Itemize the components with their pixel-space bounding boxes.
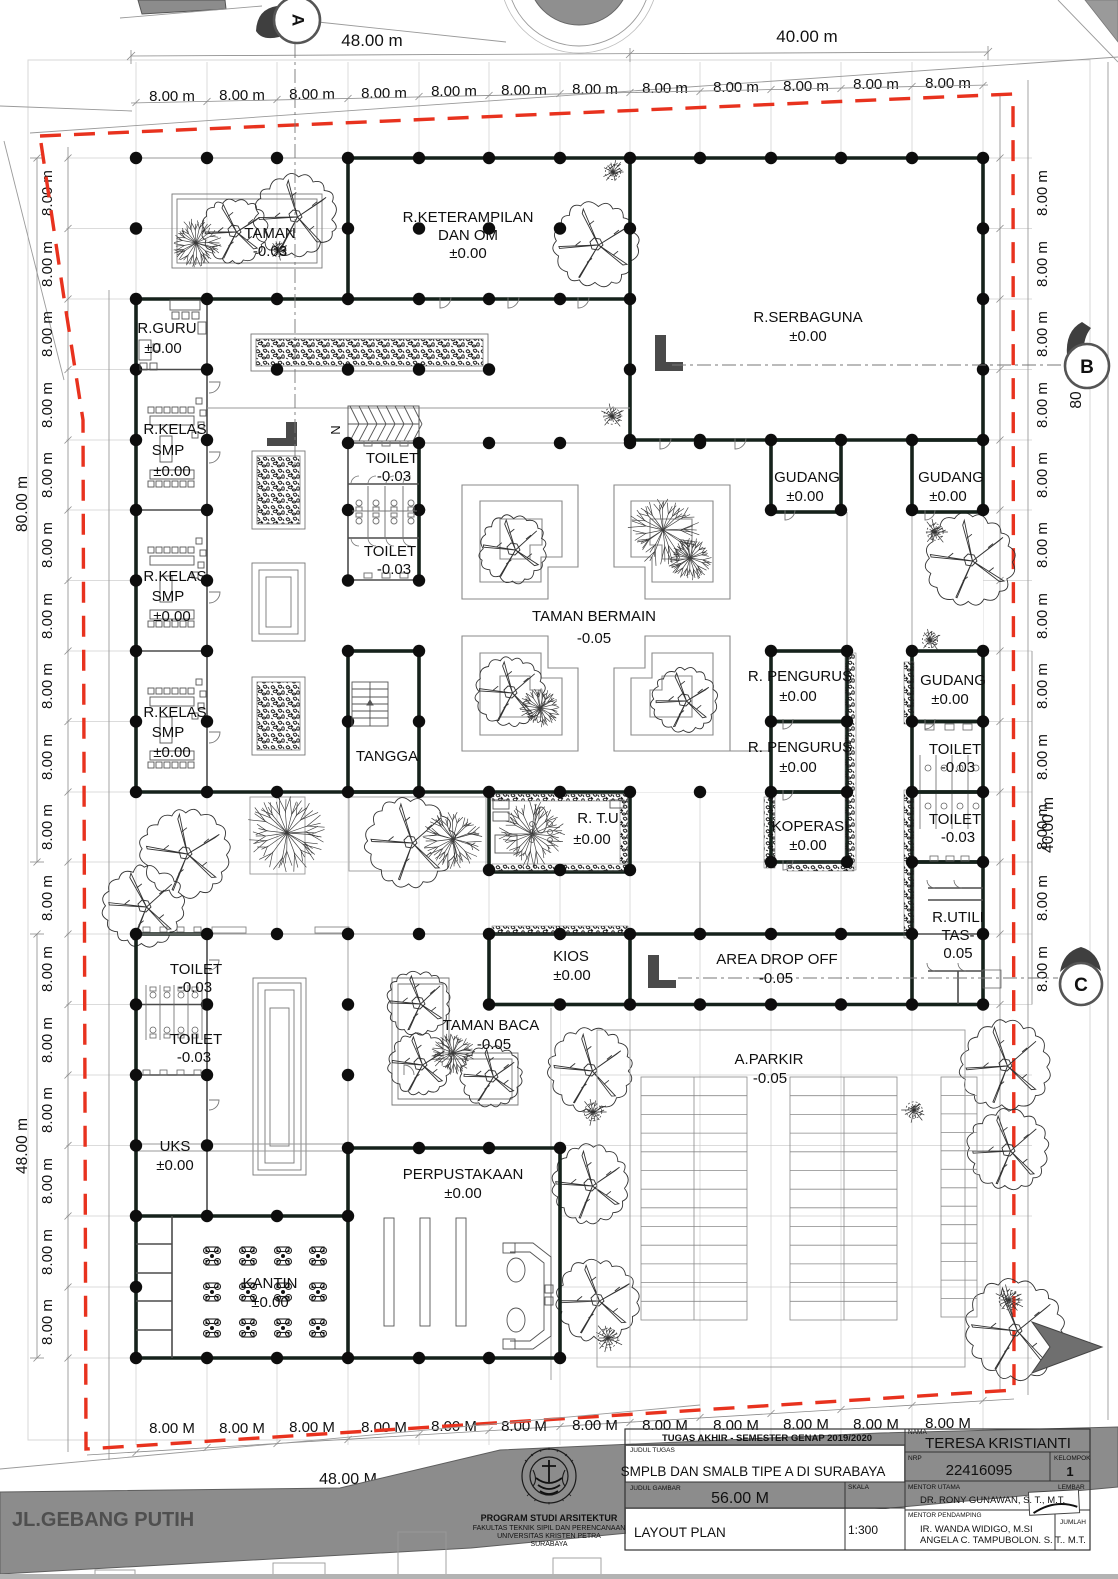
svg-text:8.00 m: 8.00 m <box>783 78 829 95</box>
svg-text:DR. RONY GUNAWAN, S. T., M.T.: DR. RONY GUNAWAN, S. T., M.T. <box>920 1495 1065 1506</box>
svg-text:8.00 m: 8.00 m <box>1034 875 1051 921</box>
svg-text:MENTOR PENDAMPING: MENTOR PENDAMPING <box>908 1512 982 1519</box>
svg-text:8.00 m: 8.00 m <box>289 86 335 103</box>
svg-text:8.00 m: 8.00 m <box>1034 170 1051 216</box>
svg-text:R.KELAS: R.KELAS <box>143 568 206 585</box>
svg-text:R.KELAS: R.KELAS <box>143 421 206 438</box>
svg-text:8.00 m: 8.00 m <box>39 1229 56 1275</box>
svg-text:GUDANG: GUDANG <box>918 469 984 486</box>
svg-text:±0.00: ±0.00 <box>156 1157 193 1174</box>
svg-text:R.KETERAMPILAN: R.KETERAMPILAN <box>403 209 534 226</box>
svg-text:A.PARKIR: A.PARKIR <box>735 1051 804 1068</box>
svg-text:ANGELA C. TAMPUBOLON. S. T.. M: ANGELA C. TAMPUBOLON. S. T.. M.T. <box>920 1535 1086 1546</box>
svg-text:TOILET: TOILET <box>170 961 222 978</box>
svg-text:8.00 M: 8.00 M <box>853 1416 899 1433</box>
svg-text:8.00 m: 8.00 m <box>39 1017 56 1063</box>
svg-text:8.00 M: 8.00 M <box>713 1417 759 1434</box>
svg-text:8.00 m: 8.00 m <box>361 85 407 102</box>
svg-text:-0.05: -0.05 <box>477 1036 511 1053</box>
svg-text:8.00 m: 8.00 m <box>925 75 971 92</box>
svg-text:TAMAN BERMAIN: TAMAN BERMAIN <box>532 608 656 625</box>
svg-text:8.00 m: 8.00 m <box>853 76 899 93</box>
svg-text:KELOMPOK: KELOMPOK <box>1054 1455 1091 1462</box>
svg-text:GUDANG: GUDANG <box>774 469 840 486</box>
svg-text:TOILET: TOILET <box>364 543 416 560</box>
svg-text:JL.GEBANG PUTIH: JL.GEBANG PUTIH <box>12 1509 194 1531</box>
svg-text:SMP: SMP <box>152 724 185 741</box>
svg-text:8.00 M: 8.00 M <box>642 1417 688 1434</box>
svg-text:8.00 m: 8.00 m <box>572 81 618 98</box>
svg-text:8.00 m: 8.00 m <box>1034 946 1051 992</box>
svg-text:UKS: UKS <box>160 1138 191 1155</box>
svg-text:8.00 m: 8.00 m <box>642 80 688 97</box>
svg-text:±0.00: ±0.00 <box>144 340 181 357</box>
svg-text:8.00 m: 8.00 m <box>1034 663 1051 709</box>
svg-text:8.00 M: 8.00 M <box>783 1416 829 1433</box>
svg-text:8.00 m: 8.00 m <box>1034 593 1051 639</box>
svg-text:48.00 m: 48.00 m <box>14 1118 31 1174</box>
svg-text:±0.00: ±0.00 <box>153 463 190 480</box>
svg-text:KOPERASI: KOPERASI <box>772 818 849 835</box>
svg-text:±0.00: ±0.00 <box>786 488 823 505</box>
svg-text:8.00 m: 8.00 m <box>39 946 56 992</box>
svg-text:40.00 m: 40.00 m <box>1040 797 1057 853</box>
svg-text:80: 80 <box>1068 391 1085 409</box>
svg-text:8.00 m: 8.00 m <box>219 87 265 104</box>
svg-text:PROGRAM STUDI ARSITEKTUR: PROGRAM STUDI ARSITEKTUR <box>481 1513 618 1523</box>
svg-text:MENTOR UTAMA: MENTOR UTAMA <box>908 1484 961 1491</box>
svg-text:22416095: 22416095 <box>946 1462 1013 1479</box>
svg-text:8.00 m: 8.00 m <box>39 1158 56 1204</box>
svg-text:N: N <box>328 425 343 434</box>
svg-text:8.00 M: 8.00 M <box>572 1417 618 1434</box>
svg-text:±0.00: ±0.00 <box>789 837 826 854</box>
svg-text:FAKULTAS TEKNIK SIPIL DAN PERE: FAKULTAS TEKNIK SIPIL DAN PERENCANAAN <box>473 1525 626 1532</box>
svg-text:R.GURU: R.GURU <box>137 320 196 337</box>
svg-text:8.00 m: 8.00 m <box>713 79 759 96</box>
svg-text:KIOS: KIOS <box>553 948 589 965</box>
svg-text:AREA DROP OFF: AREA DROP OFF <box>716 951 837 968</box>
svg-text:8.00 m: 8.00 m <box>431 83 477 100</box>
svg-text:LEMBAR: LEMBAR <box>1058 1484 1085 1491</box>
svg-text:±0.00: ±0.00 <box>251 1294 288 1311</box>
svg-text:SMP: SMP <box>152 442 185 459</box>
svg-text:±0.00: ±0.00 <box>931 691 968 708</box>
svg-text:R. PENGURUS: R. PENGURUS <box>748 739 852 756</box>
svg-text:8.00 m: 8.00 m <box>39 522 56 568</box>
svg-text:R.KELAS: R.KELAS <box>143 704 206 721</box>
svg-text:8.00 m: 8.00 m <box>1034 382 1051 428</box>
svg-text:-0.03: -0.03 <box>941 829 975 846</box>
svg-text:8.00 M: 8.00 M <box>219 1420 265 1437</box>
svg-text:8.00 m: 8.00 m <box>39 452 56 498</box>
svg-text:8.00 m: 8.00 m <box>39 804 56 850</box>
svg-text:±0.00: ±0.00 <box>789 328 826 345</box>
svg-text:±0.00: ±0.00 <box>153 608 190 625</box>
svg-text:SURABAYA: SURABAYA <box>530 1541 567 1548</box>
svg-text:40.00 m: 40.00 m <box>776 27 837 46</box>
svg-text:DAN OM: DAN OM <box>438 227 498 244</box>
svg-text:±0.00: ±0.00 <box>449 245 486 262</box>
svg-text:8.00 m: 8.00 m <box>1034 241 1051 287</box>
svg-text:8.00 m: 8.00 m <box>39 311 56 357</box>
svg-text:KANTIN: KANTIN <box>242 1275 297 1292</box>
svg-text:-0.03: -0.03 <box>177 1049 211 1066</box>
svg-text:8.00 m: 8.00 m <box>39 875 56 921</box>
svg-text:TUGAS AKHIR - SEMESTER GENAP 2: TUGAS AKHIR - SEMESTER GENAP 2019/2020 <box>662 1433 872 1444</box>
svg-text:TOILET: TOILET <box>929 741 981 758</box>
svg-text:B: B <box>1080 357 1094 378</box>
svg-text:-0.03: -0.03 <box>253 243 287 260</box>
svg-text:8.00 m: 8.00 m <box>1034 452 1051 498</box>
svg-text:TAMAN BACA: TAMAN BACA <box>443 1017 539 1034</box>
svg-text:56.00 M: 56.00 M <box>711 1490 769 1507</box>
svg-text:SKALA: SKALA <box>848 1484 870 1491</box>
svg-text:UNIVERSITAS KRISTEN PETRA: UNIVERSITAS KRISTEN PETRA <box>497 1533 601 1540</box>
svg-text:±0.00: ±0.00 <box>444 1185 481 1202</box>
svg-text:-0.05: -0.05 <box>753 1070 787 1087</box>
svg-text:R. PENGURUS: R. PENGURUS <box>748 668 852 685</box>
svg-text:±0.00: ±0.00 <box>779 688 816 705</box>
svg-text:PERPUSTAKAAN: PERPUSTAKAAN <box>403 1166 524 1183</box>
svg-text:-0.03: -0.03 <box>377 468 411 485</box>
svg-text:±0.00: ±0.00 <box>153 744 190 761</box>
svg-text:TAS-: TAS- <box>941 927 974 944</box>
svg-text:-0.03: -0.03 <box>377 561 411 578</box>
svg-text:8.00 m: 8.00 m <box>39 734 56 780</box>
svg-text:8.00 m: 8.00 m <box>39 593 56 639</box>
svg-text:±0.00: ±0.00 <box>573 831 610 848</box>
svg-text:8.00 m: 8.00 m <box>39 1299 56 1345</box>
svg-text:8.00 m: 8.00 m <box>1034 734 1051 780</box>
svg-text:1:300: 1:300 <box>848 1523 878 1537</box>
svg-text:TAMAN: TAMAN <box>244 225 295 242</box>
svg-text:R.UTILI: R.UTILI <box>932 909 984 926</box>
svg-text:-0.03: -0.03 <box>941 759 975 776</box>
svg-text:48.00 m: 48.00 m <box>341 31 402 50</box>
svg-text:TOILET: TOILET <box>170 1031 222 1048</box>
svg-text:NRP: NRP <box>908 1455 922 1462</box>
svg-text:TERESA KRISTIANTI: TERESA KRISTIANTI <box>925 1435 1071 1452</box>
svg-text:SMP: SMP <box>152 588 185 605</box>
svg-text:8.00 m: 8.00 m <box>39 1087 56 1133</box>
svg-text:R. T.U: R. T.U <box>577 810 618 827</box>
svg-text:8.00 m: 8.00 m <box>501 82 547 99</box>
svg-text:JUDUL TUGAS: JUDUL TUGAS <box>630 1447 675 1454</box>
svg-text:JUDUL GAMBAR: JUDUL GAMBAR <box>630 1485 681 1492</box>
svg-text:8.00 m: 8.00 m <box>1034 311 1051 357</box>
svg-text:1: 1 <box>1066 1464 1073 1479</box>
svg-text:SMPLB DAN SMALB TIPE A DI SURA: SMPLB DAN SMALB TIPE A DI SURABAYA <box>621 1464 886 1479</box>
svg-text:±0.00: ±0.00 <box>929 488 966 505</box>
svg-text:-0.03: -0.03 <box>178 979 212 996</box>
svg-text:8.00 m: 8.00 m <box>1034 522 1051 568</box>
svg-text:-0.05: -0.05 <box>577 630 611 647</box>
svg-text:TOILET: TOILET <box>929 811 981 828</box>
svg-text:C: C <box>1074 975 1088 996</box>
svg-text:8.00 m: 8.00 m <box>39 663 56 709</box>
svg-text:8.00 m: 8.00 m <box>39 382 56 428</box>
svg-text:LAYOUT PLAN: LAYOUT PLAN <box>634 1525 726 1540</box>
svg-text:±0.00: ±0.00 <box>779 759 816 776</box>
svg-text:IR. WANDA WIDIGO, M.SI: IR. WANDA WIDIGO, M.SI <box>920 1524 1033 1535</box>
svg-text:±0.00: ±0.00 <box>553 967 590 984</box>
svg-text:8.00 m: 8.00 m <box>39 241 56 287</box>
svg-text:0.05: 0.05 <box>943 945 972 962</box>
svg-text:8.00 M: 8.00 M <box>149 1420 195 1437</box>
svg-text:A: A <box>289 14 308 26</box>
svg-text:80.00 m: 80.00 m <box>14 476 31 532</box>
svg-text:R.SERBAGUNA: R.SERBAGUNA <box>753 309 862 326</box>
svg-text:TANGGA: TANGGA <box>356 748 418 765</box>
svg-text:JUMLAH: JUMLAH <box>1060 1519 1086 1526</box>
svg-text:TOILET: TOILET <box>366 450 418 467</box>
svg-text:GUDANG: GUDANG <box>920 672 986 689</box>
svg-text:-0.05: -0.05 <box>759 970 793 987</box>
